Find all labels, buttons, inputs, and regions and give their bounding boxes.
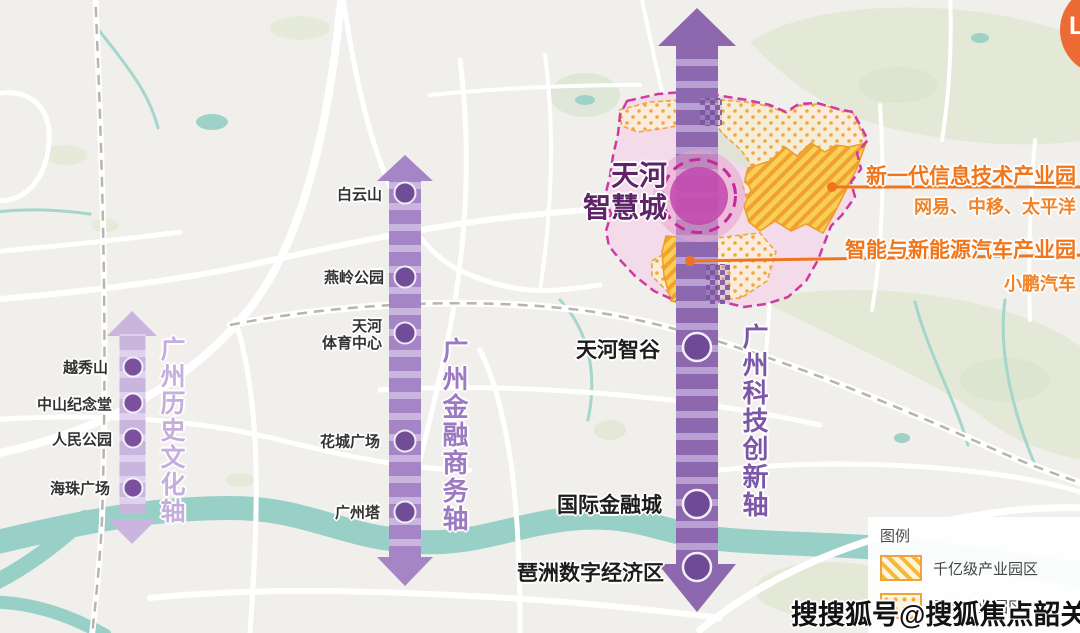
smart-city-label-line2: 智慧城 — [583, 192, 667, 224]
tech-axis-arrow-up — [658, 8, 736, 46]
landmark-canton-tower: 广州塔 — [335, 502, 380, 523]
legend-hatch-label: 千亿级产业园区 — [933, 558, 1038, 579]
landmark-huacheng-square: 花城广场 — [320, 431, 380, 452]
history-axis-title: 广州历史文化轴 — [153, 336, 189, 525]
landmark-tianhe-zhigu: 天河智谷 — [576, 334, 660, 364]
landmark-tianhe-sports-center-line1: 天河 — [322, 318, 382, 335]
ev-park-companies: 小鹏汽车 — [1004, 270, 1076, 296]
landmark-tianhe-sports-center-line2: 体育中心 — [322, 335, 382, 352]
info-tech-park-title: 新一代信息技术产业园 — [866, 160, 1076, 190]
legend-hatch-swatch — [880, 555, 922, 581]
landmark-baiyunshan: 白云山 — [337, 184, 382, 205]
legend-title: 图例 — [880, 525, 1080, 546]
finance-axis-title: 广州金融商务轴 — [436, 337, 473, 533]
history-axis-arrow-down — [107, 519, 157, 544]
corner-badge-letter: L — [1069, 12, 1080, 41]
smart-city-label-line1: 天河 — [583, 160, 667, 192]
finance-axis-arrow-down — [377, 557, 433, 586]
finance-axis — [377, 155, 433, 586]
history-axis — [107, 311, 157, 544]
landmark-pazhou-digital-economy-zone: 琶洲数字经济区 — [517, 557, 664, 587]
watermark: 搜搜狐号@搜狐焦点韶关站 — [791, 593, 1080, 632]
planning-map: 越秀山 中山纪念堂 人民公园 海珠广场 白云山 燕岭公园 天河 体育中心 花城广… — [0, 0, 1080, 633]
landmark-yanling-park: 燕岭公园 — [324, 267, 384, 288]
legend-item-hatch: 千亿级产业园区 — [880, 555, 1080, 581]
landmark-international-finance-city: 国际金融城 — [557, 489, 662, 519]
ev-park-title: 智能与新能源汽车产业园 — [845, 234, 1076, 264]
landmark-haizhu-square: 海珠广场 — [50, 478, 110, 499]
history-axis-arrow-up — [107, 311, 157, 336]
landmark-yuexiushan: 越秀山 — [63, 357, 108, 378]
landmark-renmin-park: 人民公园 — [52, 429, 112, 450]
landmark-tianhe-sports-center: 天河 体育中心 — [322, 318, 382, 352]
axis-zone-overlap-1 — [700, 98, 722, 126]
axis-zone-overlap-2 — [706, 264, 730, 304]
smart-city-core — [670, 167, 728, 225]
landmark-zhongshan-memorial: 中山纪念堂 — [37, 394, 112, 415]
smart-city-label: 天河 智慧城 — [583, 160, 667, 224]
info-tech-park-companies: 网易、中移、太平洋 — [914, 193, 1076, 219]
tech-axis-title: 广州科技创新轴 — [736, 323, 773, 519]
finance-axis-arrow-up — [377, 155, 433, 181]
